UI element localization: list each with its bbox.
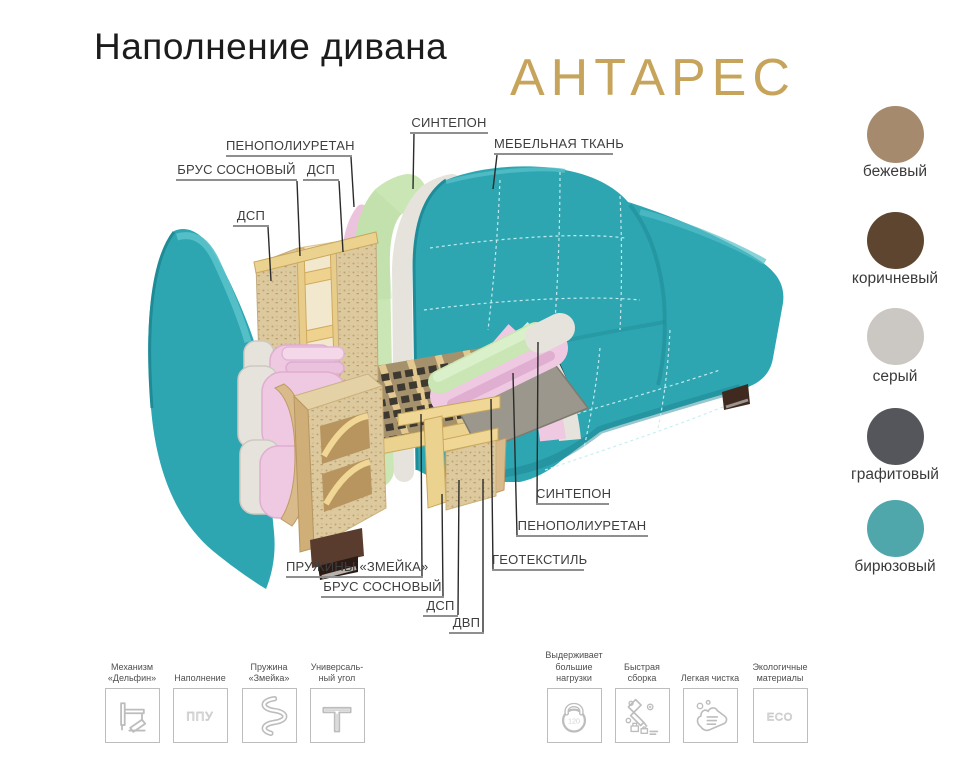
- universal-corner-icon: [317, 696, 357, 736]
- snake-spring-icon: [249, 696, 289, 736]
- swatch-brown: [867, 212, 924, 269]
- svg-text:ECO: ECO: [767, 711, 793, 723]
- swatch-gray: [867, 308, 924, 365]
- easy-cleaning-icon: [690, 696, 730, 736]
- dolphin-mechanism-icon: [112, 696, 152, 736]
- label-dvp: ДВП: [449, 615, 484, 634]
- eco-icon: ECO: [760, 696, 800, 736]
- svg-text:ППУ: ППУ: [186, 709, 213, 723]
- label-brus-sosnovy-top: БРУС СОСНОВЫЙ: [176, 162, 297, 181]
- swatch-label-brown: коричневый: [835, 270, 955, 288]
- swatch-label-beige: бежевый: [835, 163, 955, 181]
- infographic-canvas: Наполнение дивана АНТАРЕС: [0, 0, 958, 774]
- label-sintepon-bottom: СИНТЕПОН: [536, 486, 609, 505]
- label-dsp-top: ДСП: [303, 162, 339, 181]
- feature-easy-cleaning: Легкая чистка: [670, 648, 750, 743]
- svg-text:120: 120: [568, 716, 580, 725]
- swatch-label-graphite: графитовый: [835, 466, 955, 484]
- feature-eco-materials: Экологичные материалы ECO: [740, 648, 820, 743]
- label-geotextil: ГЕОТЕКСТИЛЬ: [492, 552, 584, 571]
- label-penopoliuretan-top: ПЕНОПОЛИУРЕТАН: [226, 138, 352, 157]
- label-dsp-left: ДСП: [233, 208, 269, 227]
- dsp-panel: [446, 440, 496, 510]
- label-penopoliuretan-bottom: ПЕНОПОЛИУРЕТАН: [516, 518, 648, 537]
- swatch-beige: [867, 106, 924, 163]
- label-brus-sosnovy-bottom: БРУС СОСНОВЫЙ: [321, 579, 444, 598]
- label-sintepon-top: СИНТЕПОН: [410, 115, 488, 134]
- armrest-chipboard-box: [294, 374, 386, 552]
- kettlebell-icon: 120: [554, 696, 594, 736]
- quick-assembly-icon: [622, 696, 662, 736]
- label-mebelnaya-tkan: МЕБЕЛЬНАЯ ТКАНЬ: [494, 136, 613, 155]
- swatch-label-turquoise: бирюзовый: [835, 558, 955, 576]
- ppu-icon: ППУ: [180, 696, 220, 736]
- feature-filling: Наполнение ППУ: [160, 648, 240, 743]
- swatch-graphite: [867, 408, 924, 465]
- label-pruzhiny-zmeika: ПРУЖИНЫ «ЗМЕЙКА»: [286, 559, 423, 578]
- swatch-label-gray: серый: [835, 368, 955, 386]
- feature-universal-corner: Универсаль- ный угол: [297, 648, 377, 743]
- swatch-turquoise: [867, 500, 924, 557]
